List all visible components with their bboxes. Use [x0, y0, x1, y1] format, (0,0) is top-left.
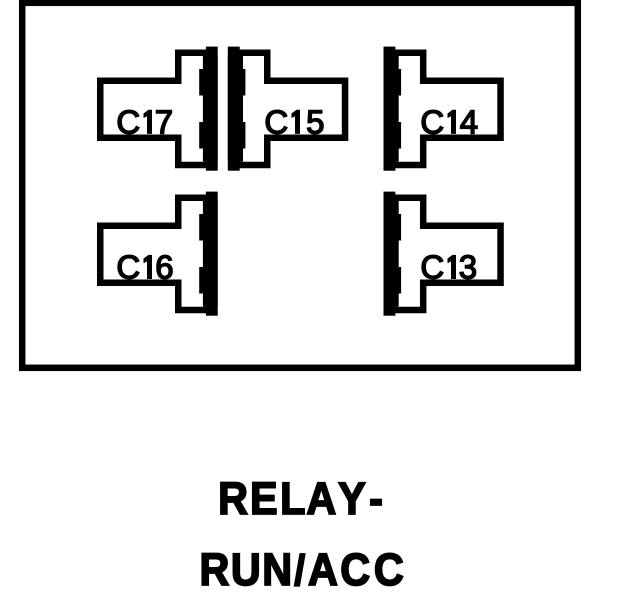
- svg-text:RUN/ACC: RUN/ACC: [200, 545, 404, 595]
- svg-text:RELAY-: RELAY-: [218, 475, 383, 525]
